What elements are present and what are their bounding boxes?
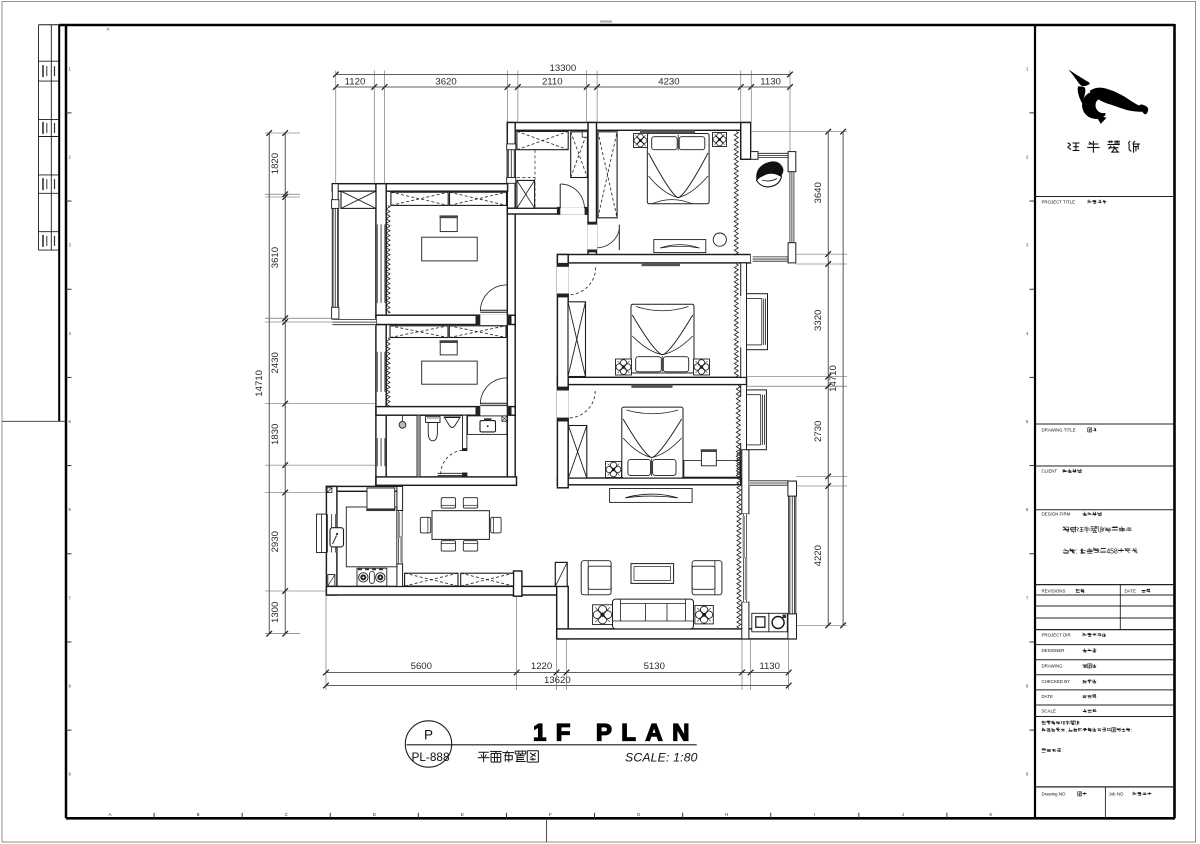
svg-text::: : xyxy=(1131,728,1132,733)
svg-text:K: K xyxy=(989,812,992,817)
svg-text:4230: 4230 xyxy=(658,76,679,87)
svg-text::: : xyxy=(1062,749,1063,754)
svg-text:3610: 3610 xyxy=(270,247,281,268)
svg-text:DESIGN FIRM: DESIGN FIRM xyxy=(1042,512,1071,517)
svg-text:DATE: DATE xyxy=(1042,694,1053,699)
svg-text:1F PLAN: 1F PLAN xyxy=(533,720,699,747)
svg-text:CLIENT: CLIENT xyxy=(1042,469,1058,474)
svg-text:4220: 4220 xyxy=(813,545,824,566)
svg-text:1300: 1300 xyxy=(270,602,281,623)
svg-text:14710: 14710 xyxy=(828,365,839,392)
svg-text:8: 8 xyxy=(1114,549,1118,556)
svg-text:A: A xyxy=(109,812,112,817)
svg-text:D: D xyxy=(373,812,376,817)
svg-text:C: C xyxy=(285,812,288,817)
svg-text:3320: 3320 xyxy=(813,310,824,331)
svg-text:1130: 1130 xyxy=(760,76,781,87)
svg-text:1820: 1820 xyxy=(270,153,281,174)
svg-text:G: G xyxy=(637,812,641,817)
svg-text:DRAWING: DRAWING xyxy=(1042,664,1064,669)
svg-text:REVISIONS: REVISIONS xyxy=(1042,589,1066,594)
svg-text:P: P xyxy=(424,728,433,743)
svg-text:PL-888: PL-888 xyxy=(411,750,449,764)
svg-text:2730: 2730 xyxy=(813,421,824,442)
svg-text:5600: 5600 xyxy=(411,661,432,672)
svg-text:2110: 2110 xyxy=(542,76,563,87)
svg-text:3620: 3620 xyxy=(435,76,456,87)
svg-text:B: B xyxy=(197,812,200,817)
svg-text:J: J xyxy=(902,812,904,817)
svg-text:2930: 2930 xyxy=(270,531,281,552)
svg-text:1220: 1220 xyxy=(531,661,552,672)
svg-text:A: A xyxy=(107,27,110,32)
svg-text:PROJECT DIR: PROJECT DIR xyxy=(1042,633,1071,638)
svg-text:Job NO: Job NO xyxy=(1109,792,1124,797)
svg-text:DESIGNER: DESIGNER xyxy=(1042,648,1065,653)
svg-text:H: H xyxy=(725,812,728,817)
svg-text:I: I xyxy=(814,812,815,817)
svg-text:DRAWING TITLE: DRAWING TITLE xyxy=(1042,428,1076,433)
svg-text:3640: 3640 xyxy=(813,182,824,203)
svg-text:14710: 14710 xyxy=(254,370,265,397)
svg-text:SCALE: 1:80: SCALE: 1:80 xyxy=(625,751,698,765)
svg-text:13300: 13300 xyxy=(550,63,577,74)
svg-text:SCALE: SCALE xyxy=(1042,709,1056,714)
svg-text:1130: 1130 xyxy=(759,661,780,672)
svg-text:PROJECT TITLE: PROJECT TITLE xyxy=(1042,200,1076,205)
svg-text::: : xyxy=(1076,549,1078,556)
svg-text:1120: 1120 xyxy=(345,76,366,87)
svg-text:E: E xyxy=(461,812,464,817)
svg-text:1830: 1830 xyxy=(270,424,281,445)
svg-text:F: F xyxy=(549,812,552,817)
svg-text:CHECKED BY: CHECKED BY xyxy=(1042,679,1071,684)
svg-text:,: , xyxy=(1066,728,1067,733)
svg-text:Drawing NO: Drawing NO xyxy=(1042,792,1066,797)
svg-text:2430: 2430 xyxy=(270,352,281,373)
svg-text:DATE: DATE xyxy=(1125,589,1136,594)
svg-text:5130: 5130 xyxy=(644,661,665,672)
